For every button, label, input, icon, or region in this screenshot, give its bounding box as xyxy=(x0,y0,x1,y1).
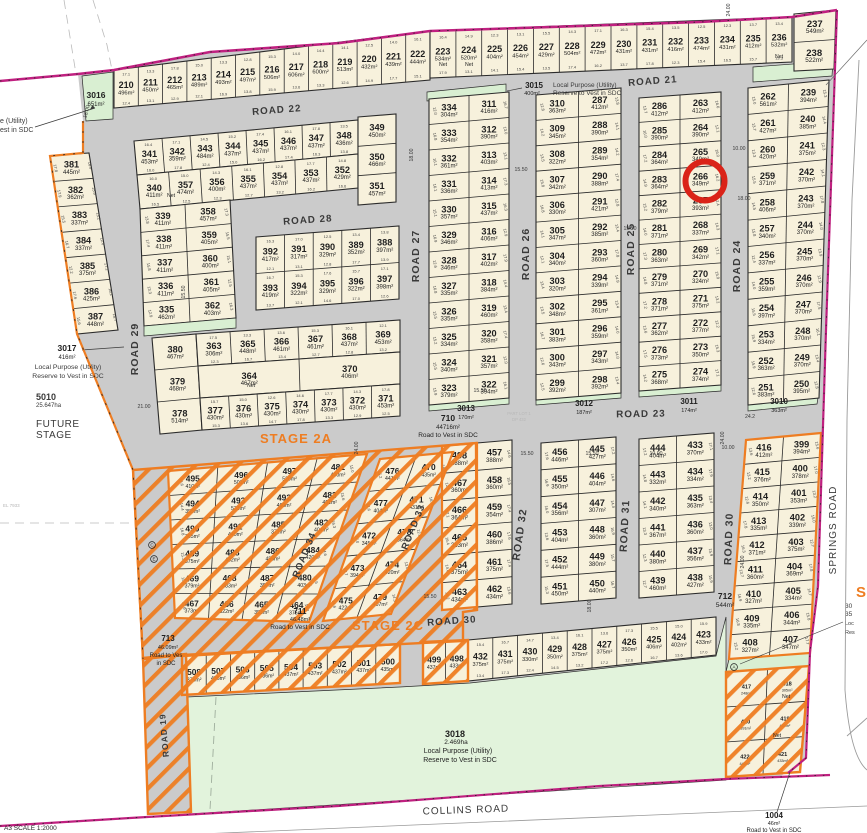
svg-text:271: 271 xyxy=(693,293,708,303)
svg-text:351: 351 xyxy=(369,181,384,191)
svg-text:342: 342 xyxy=(170,146,185,156)
svg-text:457: 457 xyxy=(487,448,502,458)
svg-text:346m²: 346m² xyxy=(440,240,457,246)
svg-text:437m²: 437m² xyxy=(308,144,325,150)
svg-text:322m²: 322m² xyxy=(348,287,365,293)
svg-text:424: 424 xyxy=(671,632,686,642)
svg-text:Road to Vest in SDC: Road to Vest in SDC xyxy=(270,624,330,631)
svg-text:12.3: 12.3 xyxy=(491,32,500,37)
svg-text:13.5: 13.5 xyxy=(672,25,681,30)
svg-text:710: 710 xyxy=(441,413,455,423)
svg-text:ROAD 24: ROAD 24 xyxy=(731,240,743,293)
svg-text:360m²: 360m² xyxy=(486,485,503,491)
svg-text:13.3: 13.3 xyxy=(147,68,156,73)
svg-text:17.1: 17.1 xyxy=(381,266,390,271)
svg-text:239: 239 xyxy=(801,88,816,98)
svg-text:348: 348 xyxy=(336,131,351,141)
svg-text:13.6: 13.6 xyxy=(601,630,610,635)
svg-text:16.3: 16.3 xyxy=(313,152,322,157)
svg-text:441: 441 xyxy=(650,523,665,533)
svg-text:345m²: 345m² xyxy=(549,134,566,140)
svg-text:437m²: 437m² xyxy=(280,146,297,152)
svg-text:455: 455 xyxy=(552,474,567,484)
svg-text:256: 256 xyxy=(759,250,774,260)
svg-text:301: 301 xyxy=(550,327,565,337)
svg-text:356m²: 356m² xyxy=(551,511,568,517)
svg-text:FUTURE: FUTURE xyxy=(36,419,80,430)
svg-text:504m²: 504m² xyxy=(564,51,581,57)
svg-text:44716m²: 44716m² xyxy=(436,425,460,431)
svg-text:375m²: 375m² xyxy=(472,662,488,668)
svg-text:3018: 3018 xyxy=(445,729,465,739)
svg-text:Road to Vest in SDC: Road to Vest in SDC xyxy=(746,828,802,833)
svg-text:496m²: 496m² xyxy=(118,90,135,96)
svg-text:STAGE: STAGE xyxy=(36,430,72,441)
svg-text:222: 222 xyxy=(410,49,425,59)
svg-text:416m²: 416m² xyxy=(480,109,497,115)
svg-text:17.4: 17.4 xyxy=(256,132,265,137)
svg-text:14.7: 14.7 xyxy=(269,419,278,424)
svg-text:225: 225 xyxy=(487,44,502,54)
svg-text:16.1: 16.1 xyxy=(244,167,253,172)
svg-text:370m²: 370m² xyxy=(795,310,812,316)
svg-text:289: 289 xyxy=(592,146,607,156)
svg-text:437m²: 437m² xyxy=(271,181,288,187)
svg-text:259: 259 xyxy=(760,171,775,181)
svg-text:18.00: 18.00 xyxy=(587,599,593,612)
svg-text:245: 245 xyxy=(797,246,812,256)
svg-text:402: 402 xyxy=(790,513,805,523)
svg-text:285: 285 xyxy=(652,125,667,135)
svg-text:12.8: 12.8 xyxy=(275,164,284,169)
svg-text:357m²: 357m² xyxy=(480,364,497,370)
svg-text:221: 221 xyxy=(386,52,401,62)
svg-text:448: 448 xyxy=(590,525,605,535)
svg-text:406: 406 xyxy=(784,610,799,620)
svg-text:380m²: 380m² xyxy=(649,559,666,565)
svg-text:404m²: 404m² xyxy=(486,54,503,60)
svg-text:712: 712 xyxy=(718,591,732,601)
svg-text:385m²: 385m² xyxy=(799,124,816,130)
svg-text:396: 396 xyxy=(348,276,363,286)
svg-text:295: 295 xyxy=(592,298,607,308)
svg-text:360m²: 360m² xyxy=(687,530,704,536)
svg-text:454m²: 454m² xyxy=(512,53,529,59)
svg-text:13.5: 13.5 xyxy=(340,124,349,129)
svg-text:394: 394 xyxy=(291,281,307,291)
svg-text:437m²: 437m² xyxy=(480,211,497,217)
svg-text:291: 291 xyxy=(592,196,607,206)
svg-text:335: 335 xyxy=(159,305,174,315)
svg-text:12.5: 12.5 xyxy=(183,198,192,203)
svg-text:18.00: 18.00 xyxy=(738,196,751,202)
svg-text:25.647ha: 25.647ha xyxy=(36,403,62,409)
svg-text:393m²: 393m² xyxy=(692,206,709,212)
svg-text:13.1: 13.1 xyxy=(147,98,156,103)
svg-text:400: 400 xyxy=(793,464,808,474)
svg-text:353m²: 353m² xyxy=(790,498,807,504)
svg-text:17.5: 17.5 xyxy=(209,335,218,340)
svg-text:17.7: 17.7 xyxy=(352,259,361,264)
svg-text:240: 240 xyxy=(800,114,815,124)
svg-text:497m²: 497m² xyxy=(239,77,256,83)
svg-text:394m²: 394m² xyxy=(793,450,810,456)
svg-text:12.4: 12.4 xyxy=(122,100,131,105)
svg-text:359m²: 359m² xyxy=(591,334,608,340)
svg-text:17.3: 17.3 xyxy=(625,628,634,633)
svg-text:212: 212 xyxy=(167,75,182,85)
svg-text:17.9: 17.9 xyxy=(439,70,448,75)
svg-text:375m²: 375m² xyxy=(79,271,96,277)
svg-text:14.3: 14.3 xyxy=(353,389,362,394)
svg-text:223: 223 xyxy=(435,46,450,56)
svg-text:322m²: 322m² xyxy=(549,159,566,165)
svg-text:13.8: 13.8 xyxy=(381,230,390,235)
svg-text:453: 453 xyxy=(552,528,567,538)
svg-text:307m²: 307m² xyxy=(589,508,606,514)
svg-text:STAGE 2C: STAGE 2C xyxy=(352,618,424,633)
svg-text:370m²: 370m² xyxy=(794,363,811,369)
svg-text:432: 432 xyxy=(473,652,488,662)
svg-text:17.1: 17.1 xyxy=(172,139,181,144)
svg-text:296: 296 xyxy=(592,324,607,334)
svg-text:14.6: 14.6 xyxy=(324,298,333,303)
svg-text:329m²: 329m² xyxy=(319,252,336,258)
svg-text:421m²: 421m² xyxy=(591,207,608,213)
svg-text:243: 243 xyxy=(798,194,813,204)
svg-text:265: 265 xyxy=(693,147,708,157)
svg-text:24.00: 24.00 xyxy=(726,3,732,16)
svg-text:17.3: 17.3 xyxy=(501,670,510,675)
svg-text:330: 330 xyxy=(441,204,456,214)
svg-text:Road to Vest in SDC: Road to Vest in SDC xyxy=(418,432,478,439)
svg-text:376: 376 xyxy=(236,403,251,413)
svg-text:257: 257 xyxy=(759,224,774,234)
svg-text:303: 303 xyxy=(550,276,565,286)
svg-text:327: 327 xyxy=(441,281,456,291)
svg-text:360: 360 xyxy=(203,253,218,263)
svg-text:Net: Net xyxy=(247,383,256,389)
svg-text:12.8: 12.8 xyxy=(346,350,355,355)
svg-text:462m²: 462m² xyxy=(158,315,175,321)
svg-text:425m²: 425m² xyxy=(83,297,100,303)
svg-text:404: 404 xyxy=(787,561,803,571)
svg-text:363: 363 xyxy=(206,341,221,351)
svg-text:24.00: 24.00 xyxy=(354,441,360,454)
svg-text:433m²: 433m² xyxy=(696,640,712,646)
svg-text:12.1: 12.1 xyxy=(379,323,388,328)
svg-text:276: 276 xyxy=(652,345,667,355)
svg-text:216: 216 xyxy=(264,65,279,75)
svg-text:461m²: 461m² xyxy=(273,347,290,353)
svg-text:362: 362 xyxy=(205,301,220,311)
svg-text:233: 233 xyxy=(694,36,709,46)
svg-text:408: 408 xyxy=(742,638,757,648)
svg-text:ROAD 26: ROAD 26 xyxy=(520,228,532,281)
svg-text:234: 234 xyxy=(720,35,735,45)
svg-text:337m²: 337m² xyxy=(75,246,92,252)
svg-text:187m²: 187m² xyxy=(576,410,592,416)
svg-text:335m²: 335m² xyxy=(440,291,457,297)
svg-text:305: 305 xyxy=(550,225,565,235)
svg-text:363m²: 363m² xyxy=(771,408,787,414)
svg-text:713: 713 xyxy=(161,634,175,643)
svg-text:STAGE 2A: STAGE 2A xyxy=(260,431,332,446)
svg-text:400m²: 400m² xyxy=(202,264,219,270)
svg-text:439m²: 439m² xyxy=(385,62,402,68)
svg-text:428: 428 xyxy=(572,642,587,652)
svg-text:356: 356 xyxy=(209,177,224,187)
svg-text:357: 357 xyxy=(178,180,193,190)
svg-text:334m²: 334m² xyxy=(758,340,775,346)
svg-text:383m²: 383m² xyxy=(549,337,566,343)
svg-text:15.5: 15.5 xyxy=(650,626,659,631)
svg-text:12.5: 12.5 xyxy=(382,411,391,416)
svg-text:370m²: 370m² xyxy=(797,204,814,210)
svg-text:334m²: 334m² xyxy=(440,342,457,348)
svg-text:356m²: 356m² xyxy=(687,556,704,562)
svg-text:367: 367 xyxy=(308,334,323,344)
svg-text:506m²: 506m² xyxy=(264,75,281,81)
svg-text:522m²: 522m² xyxy=(805,57,823,64)
svg-text:231: 231 xyxy=(642,38,657,48)
svg-text:ROAD 23: ROAD 23 xyxy=(616,409,666,421)
svg-text:13.4: 13.4 xyxy=(551,635,560,640)
svg-text:332m²: 332m² xyxy=(649,480,666,486)
svg-text:343: 343 xyxy=(197,144,212,154)
svg-text:419m²: 419m² xyxy=(262,293,279,299)
svg-text:429m²: 429m² xyxy=(334,175,351,181)
svg-text:15.9: 15.9 xyxy=(268,87,277,92)
svg-text:344m²: 344m² xyxy=(783,621,800,627)
svg-text:420m²: 420m² xyxy=(759,155,776,161)
svg-text:520m²: 520m² xyxy=(461,56,478,62)
svg-text:293: 293 xyxy=(592,247,607,257)
svg-text:460: 460 xyxy=(487,530,502,540)
svg-text:390m²: 390m² xyxy=(480,135,497,141)
svg-text:14.1: 14.1 xyxy=(341,45,350,50)
svg-text:46.48m²: 46.48m² xyxy=(290,617,310,623)
svg-text:342m²: 342m² xyxy=(549,185,566,191)
svg-text:16.2: 16.2 xyxy=(257,157,266,162)
svg-text:e (Utility): e (Utility) xyxy=(0,118,28,125)
svg-text:347m²: 347m² xyxy=(549,236,566,242)
svg-text:412m²: 412m² xyxy=(651,111,668,117)
svg-text:403m²: 403m² xyxy=(204,311,221,317)
svg-text:410: 410 xyxy=(746,589,761,599)
svg-text:374m²: 374m² xyxy=(692,377,709,383)
svg-text:467m²: 467m² xyxy=(167,355,184,361)
svg-text:368m²: 368m² xyxy=(651,380,668,386)
svg-text:15.7: 15.7 xyxy=(211,399,220,404)
svg-text:3015: 3015 xyxy=(525,81,543,90)
svg-text:15.4: 15.4 xyxy=(517,67,526,72)
svg-text:434: 434 xyxy=(688,467,704,477)
svg-text:250: 250 xyxy=(794,379,809,389)
svg-text:12.9: 12.9 xyxy=(354,413,363,418)
svg-text:Local Purpose (Utility): Local Purpose (Utility) xyxy=(424,748,492,755)
svg-text:341: 341 xyxy=(142,149,157,159)
svg-text:371: 371 xyxy=(378,393,393,403)
svg-text:ROAD 29: ROAD 29 xyxy=(129,323,141,376)
svg-text:249: 249 xyxy=(795,352,810,362)
svg-text:392: 392 xyxy=(263,247,278,257)
svg-text:18.00: 18.00 xyxy=(409,148,415,161)
svg-text:17.8: 17.8 xyxy=(312,126,321,131)
svg-text:358m²: 358m² xyxy=(480,339,497,345)
svg-text:16.2: 16.2 xyxy=(594,63,603,68)
svg-text:438: 438 xyxy=(688,573,703,583)
svg-text:345: 345 xyxy=(253,139,268,149)
svg-text:323: 323 xyxy=(441,383,456,393)
svg-text:13.1: 13.1 xyxy=(517,31,526,36)
svg-text:15.4: 15.4 xyxy=(477,642,486,647)
svg-text:219: 219 xyxy=(337,57,352,67)
svg-text:397m²: 397m² xyxy=(758,313,775,319)
svg-text:313: 313 xyxy=(481,150,496,160)
svg-text:281: 281 xyxy=(652,223,667,233)
svg-text:433: 433 xyxy=(688,440,703,450)
svg-text:13.2: 13.2 xyxy=(276,189,285,194)
svg-text:371m²: 371m² xyxy=(651,307,668,313)
svg-text:561m²: 561m² xyxy=(760,102,777,108)
svg-text:369: 369 xyxy=(375,330,390,340)
svg-text:30: 30 xyxy=(845,603,853,610)
svg-text:340: 340 xyxy=(147,183,162,193)
svg-text:343m²: 343m² xyxy=(549,363,566,369)
svg-text:395m²: 395m² xyxy=(793,389,810,395)
svg-text:298: 298 xyxy=(592,374,607,384)
svg-text:13.2: 13.2 xyxy=(379,347,388,352)
svg-text:A: A xyxy=(732,665,735,670)
svg-text:430m²: 430m² xyxy=(349,406,366,412)
svg-text:457m²: 457m² xyxy=(200,217,217,223)
svg-text:14.6: 14.6 xyxy=(296,393,305,398)
svg-text:244: 244 xyxy=(798,220,814,230)
svg-text:ROAD 30: ROAD 30 xyxy=(722,512,736,565)
svg-text:14.8: 14.8 xyxy=(338,158,347,163)
svg-text:13.8: 13.8 xyxy=(244,89,253,94)
svg-text:12.6: 12.6 xyxy=(268,395,277,400)
svg-text:Res: Res xyxy=(845,630,855,636)
svg-text:17.8: 17.8 xyxy=(297,417,306,422)
svg-text:448m²: 448m² xyxy=(87,322,104,328)
svg-text:452: 452 xyxy=(552,555,567,565)
svg-text:387: 387 xyxy=(88,312,103,322)
svg-text:277: 277 xyxy=(652,321,667,331)
svg-text:14.9: 14.9 xyxy=(365,78,374,83)
svg-text:S: S xyxy=(856,584,866,601)
svg-text:13.6: 13.6 xyxy=(240,421,249,426)
svg-text:15.50: 15.50 xyxy=(521,451,534,457)
svg-text:414: 414 xyxy=(753,492,769,502)
svg-text:12.5: 12.5 xyxy=(698,24,707,29)
svg-text:270: 270 xyxy=(693,269,708,279)
svg-text:371m²: 371m² xyxy=(748,551,765,557)
svg-text:363m²: 363m² xyxy=(687,503,704,509)
svg-text:378: 378 xyxy=(172,408,187,418)
svg-text:268: 268 xyxy=(693,220,708,230)
svg-text:13.4: 13.4 xyxy=(352,232,361,237)
svg-text:357m²: 357m² xyxy=(440,215,457,221)
svg-text:474m²: 474m² xyxy=(693,46,710,52)
svg-text:397m²: 397m² xyxy=(376,248,393,254)
svg-text:in SDC: in SDC xyxy=(156,661,176,667)
svg-text:375m²: 375m² xyxy=(572,652,588,658)
svg-text:359m²: 359m² xyxy=(758,287,775,293)
svg-text:440m²: 440m² xyxy=(589,589,606,595)
svg-text:711: 711 xyxy=(294,607,307,616)
svg-text:386m²: 386m² xyxy=(486,540,503,546)
svg-text:359: 359 xyxy=(202,230,217,240)
svg-text:297: 297 xyxy=(592,349,607,359)
svg-text:15.2: 15.2 xyxy=(228,134,237,139)
svg-text:3017: 3017 xyxy=(58,343,77,353)
svg-text:370m²: 370m² xyxy=(797,230,814,236)
svg-text:314: 314 xyxy=(481,175,497,185)
svg-text:416m²: 416m² xyxy=(58,355,75,361)
svg-text:326: 326 xyxy=(441,306,456,316)
svg-text:300: 300 xyxy=(550,352,565,362)
svg-text:355: 355 xyxy=(241,174,256,184)
svg-text:14.3: 14.3 xyxy=(568,29,577,34)
svg-text:446: 446 xyxy=(590,471,605,481)
svg-text:444m²: 444m² xyxy=(410,59,427,65)
svg-text:403: 403 xyxy=(788,537,803,547)
svg-text:412m²: 412m² xyxy=(755,453,772,459)
svg-text:344: 344 xyxy=(225,141,241,151)
svg-text:544m²: 544m² xyxy=(716,602,735,609)
svg-text:16.7: 16.7 xyxy=(501,640,510,645)
svg-text:339m²: 339m² xyxy=(789,523,806,529)
svg-text:430m²: 430m² xyxy=(320,408,337,414)
svg-text:375m²: 375m² xyxy=(692,304,709,310)
svg-text:12.1: 12.1 xyxy=(295,300,304,305)
svg-text:24.00: 24.00 xyxy=(720,431,726,444)
svg-text:278: 278 xyxy=(652,296,667,306)
svg-text:3011: 3011 xyxy=(680,397,698,406)
svg-text:3010: 3010 xyxy=(770,397,788,406)
svg-text:358: 358 xyxy=(200,206,215,216)
svg-text:339: 339 xyxy=(155,211,170,221)
svg-text:367m²: 367m² xyxy=(649,533,666,539)
svg-text:412: 412 xyxy=(749,540,764,550)
svg-text:335m²: 335m² xyxy=(440,317,457,323)
svg-text:388m²: 388m² xyxy=(591,181,608,187)
svg-text:363m²: 363m² xyxy=(651,258,668,264)
svg-text:12.3: 12.3 xyxy=(724,23,733,28)
svg-text:14.1: 14.1 xyxy=(491,68,500,73)
svg-text:310: 310 xyxy=(550,98,565,108)
svg-text:14.9: 14.9 xyxy=(465,33,474,38)
svg-text:379m²: 379m² xyxy=(440,393,457,399)
svg-text:375: 375 xyxy=(264,401,279,411)
svg-text:16.4: 16.4 xyxy=(144,142,153,147)
svg-text:606m²: 606m² xyxy=(288,72,305,78)
svg-text:412m²: 412m² xyxy=(745,44,762,50)
svg-text:Net: Net xyxy=(782,694,791,700)
svg-text:13.7: 13.7 xyxy=(620,62,629,67)
svg-text:251: 251 xyxy=(758,382,773,392)
svg-text:413: 413 xyxy=(751,516,766,526)
svg-text:12.7: 12.7 xyxy=(312,352,321,357)
svg-text:280: 280 xyxy=(652,248,667,258)
svg-text:262: 262 xyxy=(760,92,775,102)
svg-text:13.3: 13.3 xyxy=(220,60,229,65)
svg-text:255: 255 xyxy=(759,277,774,287)
svg-text:361: 361 xyxy=(204,277,219,287)
svg-text:324: 324 xyxy=(441,357,457,367)
